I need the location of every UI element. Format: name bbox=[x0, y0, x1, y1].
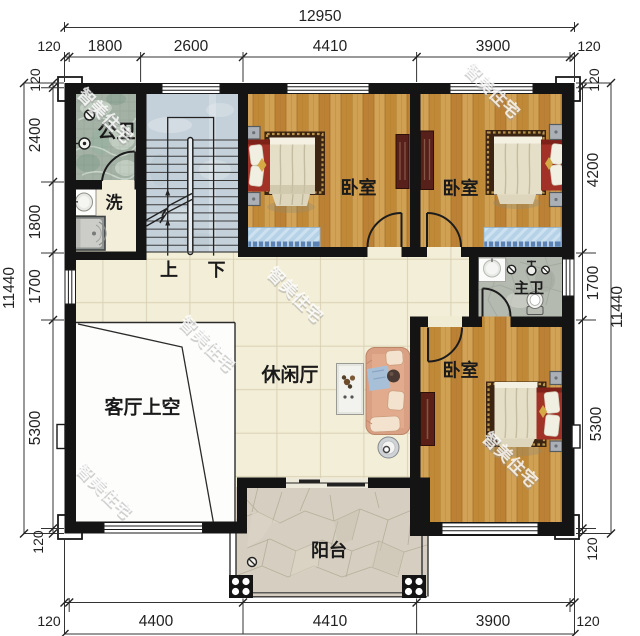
svg-text:11440: 11440 bbox=[609, 286, 626, 328]
svg-text:2600: 2600 bbox=[174, 38, 209, 55]
svg-text:休闲厅: 休闲厅 bbox=[260, 363, 318, 386]
svg-text:120: 120 bbox=[27, 68, 43, 92]
svg-text:120: 120 bbox=[576, 613, 600, 629]
svg-text:1800: 1800 bbox=[88, 38, 123, 55]
svg-text:1700: 1700 bbox=[585, 265, 602, 300]
svg-text:5300: 5300 bbox=[27, 410, 44, 445]
svg-text:4410: 4410 bbox=[313, 613, 348, 630]
svg-text:卧室: 卧室 bbox=[443, 178, 479, 199]
svg-text:1700: 1700 bbox=[27, 269, 44, 304]
svg-text:120: 120 bbox=[30, 530, 46, 554]
svg-text:120: 120 bbox=[577, 38, 601, 54]
svg-text:阳台: 阳台 bbox=[311, 540, 347, 561]
svg-text:5300: 5300 bbox=[588, 406, 605, 441]
svg-text:2400: 2400 bbox=[27, 117, 44, 152]
svg-text:下: 下 bbox=[208, 260, 226, 280]
svg-text:卧室: 卧室 bbox=[443, 360, 479, 381]
svg-text:客厅上空: 客厅上空 bbox=[104, 396, 180, 419]
svg-text:4200: 4200 bbox=[585, 152, 602, 187]
svg-text:3900: 3900 bbox=[476, 38, 511, 55]
svg-text:1800: 1800 bbox=[27, 204, 44, 239]
svg-text:主卫: 主卫 bbox=[514, 279, 544, 297]
svg-text:120: 120 bbox=[584, 537, 600, 561]
svg-text:卧室: 卧室 bbox=[341, 177, 377, 198]
svg-text:洗: 洗 bbox=[106, 193, 123, 213]
svg-text:上: 上 bbox=[160, 260, 178, 280]
svg-text:120: 120 bbox=[37, 38, 61, 54]
svg-text:120: 120 bbox=[37, 613, 61, 629]
svg-text:4410: 4410 bbox=[313, 38, 348, 55]
svg-text:11440: 11440 bbox=[1, 267, 18, 309]
svg-text:4400: 4400 bbox=[139, 613, 174, 630]
svg-text:3900: 3900 bbox=[476, 613, 511, 630]
svg-text:120: 120 bbox=[586, 68, 602, 92]
svg-text:12950: 12950 bbox=[298, 8, 341, 25]
